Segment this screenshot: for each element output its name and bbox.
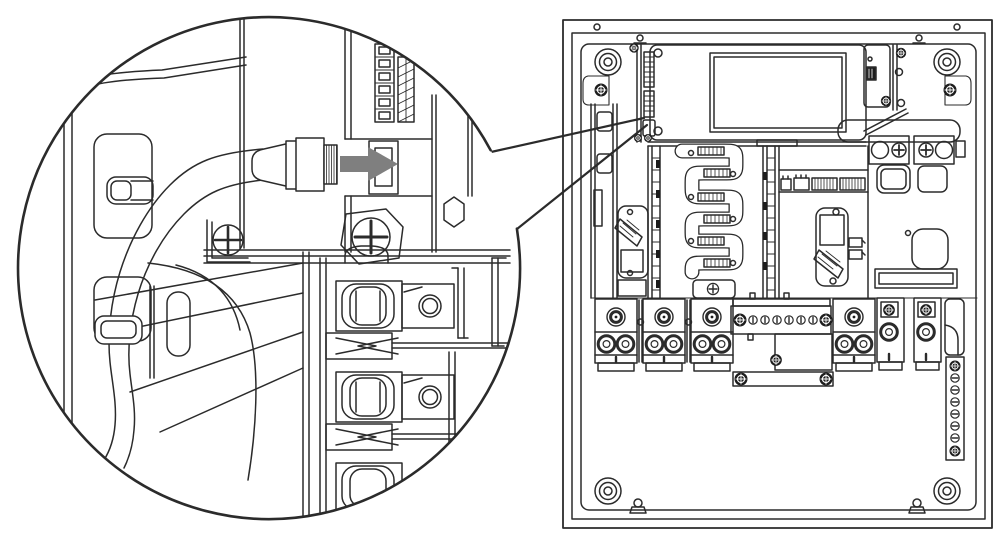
wire-clip xyxy=(849,238,865,259)
top-clips xyxy=(634,35,925,43)
bottom-clips xyxy=(630,499,925,513)
knockout xyxy=(906,229,949,269)
enclosure xyxy=(563,20,992,528)
diagram-stage xyxy=(0,0,1008,542)
display-board xyxy=(650,45,866,146)
comm-board-connectors xyxy=(629,43,655,142)
magnifier-callout xyxy=(18,17,520,525)
cable-slot xyxy=(875,269,957,288)
terminal-block-1 xyxy=(595,299,637,371)
terminal-block-3 xyxy=(691,299,733,371)
terminal-blocks xyxy=(595,299,875,371)
diagram-canvas xyxy=(0,0,1008,542)
display-screen xyxy=(710,53,846,132)
artwork xyxy=(18,17,992,528)
breaker-switch-right xyxy=(814,208,848,286)
left-column xyxy=(591,104,648,298)
pads xyxy=(877,165,947,193)
leader-lines xyxy=(491,118,647,229)
terminal-block-2 xyxy=(643,299,685,371)
breaker-switch-left xyxy=(615,206,648,278)
ground-busbar xyxy=(946,357,964,460)
flag-bracket xyxy=(945,299,964,355)
lower-bar xyxy=(733,372,833,386)
fuse-blocks xyxy=(877,298,941,370)
shunt-box xyxy=(770,334,832,370)
mid-right xyxy=(779,146,957,298)
cable-clamp xyxy=(95,316,142,344)
connector-headers xyxy=(781,175,865,190)
terminal-block-4 xyxy=(833,299,875,371)
heatsink-busbar xyxy=(648,146,775,298)
neutral-busbar xyxy=(731,293,833,340)
busbar-terminal-strips xyxy=(689,147,736,267)
aux-board xyxy=(864,45,908,135)
